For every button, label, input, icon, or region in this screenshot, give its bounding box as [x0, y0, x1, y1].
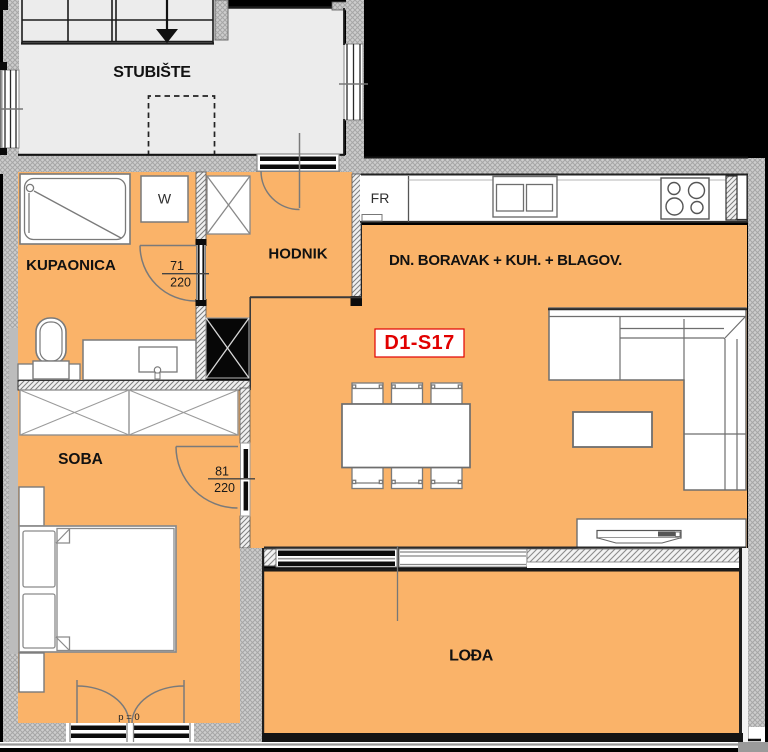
svg-text:DN. BORAVAK + KUH. + BLAGOV.: DN. BORAVAK + KUH. + BLAGOV.: [389, 252, 622, 269]
svg-text:KUPAONICA: KUPAONICA: [26, 257, 116, 274]
svg-text:D1-S17: D1-S17: [384, 332, 454, 354]
svg-text:220: 220: [170, 276, 191, 290]
svg-text:FR: FR: [371, 190, 390, 206]
svg-text:220: 220: [214, 481, 235, 495]
svg-text:W: W: [158, 191, 172, 207]
svg-text:HODNIK: HODNIK: [268, 246, 327, 263]
svg-text:SOBA: SOBA: [58, 451, 103, 468]
svg-text:LOĐA: LOĐA: [449, 648, 494, 665]
svg-text:81: 81: [215, 465, 229, 479]
svg-text:STUBIŠTE: STUBIŠTE: [113, 62, 191, 81]
svg-text:71: 71: [170, 259, 184, 273]
svg-text:p = 0: p = 0: [118, 712, 139, 723]
